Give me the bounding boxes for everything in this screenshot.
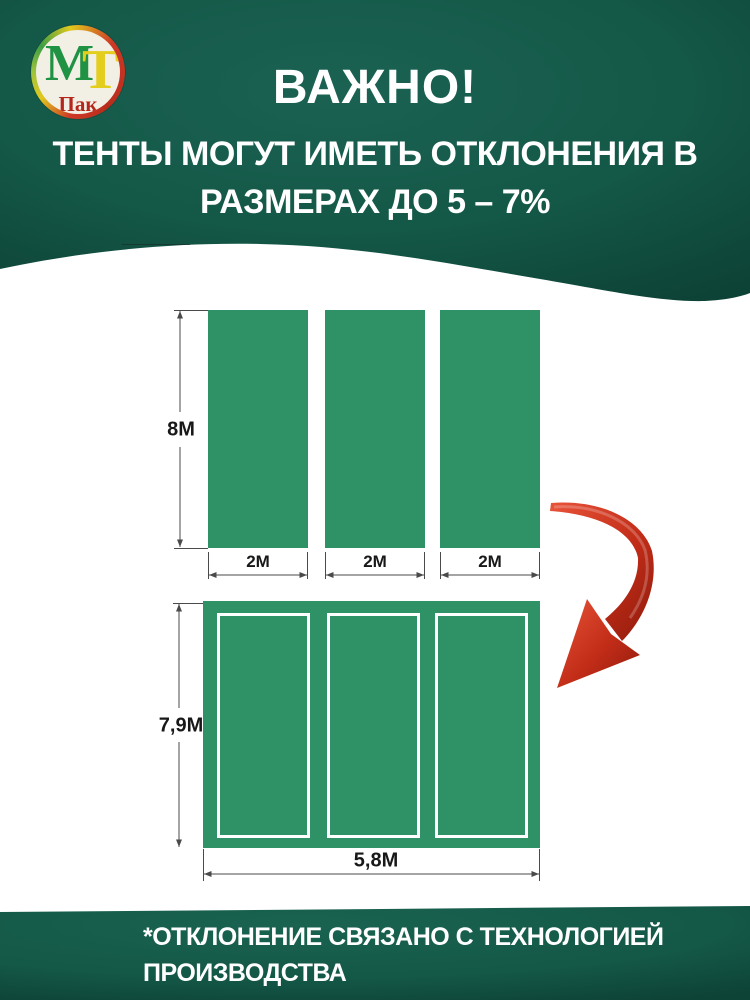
top-width-label-2: 2М [363,552,387,572]
tarp-panel-1 [208,310,308,548]
footer-note-line-1: *ОТКЛОНЕНИЕ СВЯЗАНО С ТЕХНОЛОГИЕЙ [143,919,663,955]
top-width-label-1: 2М [246,552,270,572]
seam-panel-2 [327,613,420,838]
subtitle-line-1: ТЕНТЫ МОГУТ ИМЕТЬ ОТКЛОНЕНИЯ В [0,130,750,178]
top-height-label: 8М [167,419,195,442]
top-width-label-3: 2М [478,552,502,572]
page-title: ВАЖНО! [0,60,750,115]
tarp-panel-2 [325,310,425,548]
seam-panel-1 [217,613,310,838]
curved-arrow-icon [542,495,660,697]
combined-tarp [203,601,540,848]
subtitle-line-2: РАЗМЕРАХ ДО 5 – 7% [0,178,750,226]
bottom-width-label: 5,8М [354,850,398,873]
tarp-panel-3 [440,310,540,548]
bottom-height-label: 7,9М [159,715,203,738]
footer-note-line-2: ПРОИЗВОДСТВА [143,955,663,991]
footer-note: *ОТКЛОНЕНИЕ СВЯЗАНО С ТЕХНОЛОГИЕЙ ПРОИЗВ… [143,919,663,991]
page-subtitle: ТЕНТЫ МОГУТ ИМЕТЬ ОТКЛОНЕНИЯ В РАЗМЕРАХ … [0,130,750,226]
seam-panel-3 [435,613,528,838]
infographic-page: М Т Пак ВАЖНО! ТЕНТЫ МОГУТ ИМЕТЬ ОТКЛОНЕ… [0,0,750,1000]
